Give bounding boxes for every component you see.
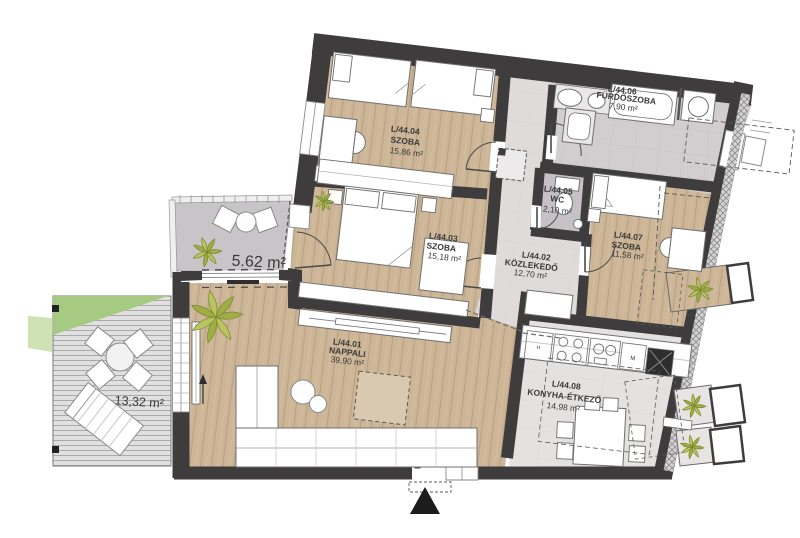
svg-text:M: M [630,356,636,363]
svg-text:WC: WC [550,193,565,205]
